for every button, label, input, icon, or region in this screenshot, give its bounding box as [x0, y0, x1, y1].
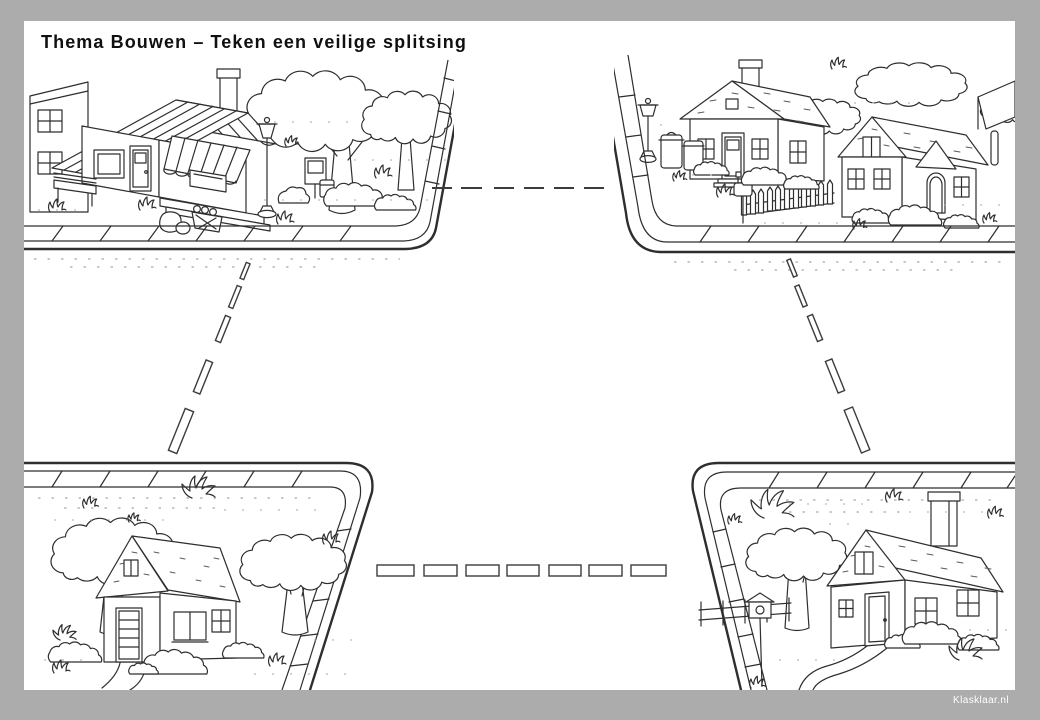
- road-marking-dashes-right: [779, 251, 889, 466]
- scene-street-corner-bottom-right: [659, 460, 1015, 690]
- tree-right: [240, 534, 347, 635]
- apartment-building: [30, 82, 88, 212]
- rail-fence: [699, 598, 791, 626]
- neighbor-building: [978, 81, 1015, 165]
- worksheet-page: Thema Bouwen – Teken een veilige splitsi…: [24, 21, 1015, 690]
- worksheet-backdrop: { "worksheet": { "title": "Thema Bouwen …: [0, 0, 1040, 720]
- road-marking-dashes-bottom: [372, 559, 672, 583]
- bushes-and-rocks: [278, 183, 416, 210]
- walkway: [799, 646, 887, 690]
- scene-street-corner-bottom-left: [24, 460, 400, 690]
- worksheet-title: Thema Bouwen – Teken een veilige splitsi…: [41, 32, 467, 53]
- watermark-brand: Klasklaar.nl: [953, 695, 1009, 706]
- road-marking-dashes-top: [429, 181, 609, 195]
- road-marking-dashes-left: [164, 251, 274, 466]
- birdhouse-post: [746, 593, 774, 688]
